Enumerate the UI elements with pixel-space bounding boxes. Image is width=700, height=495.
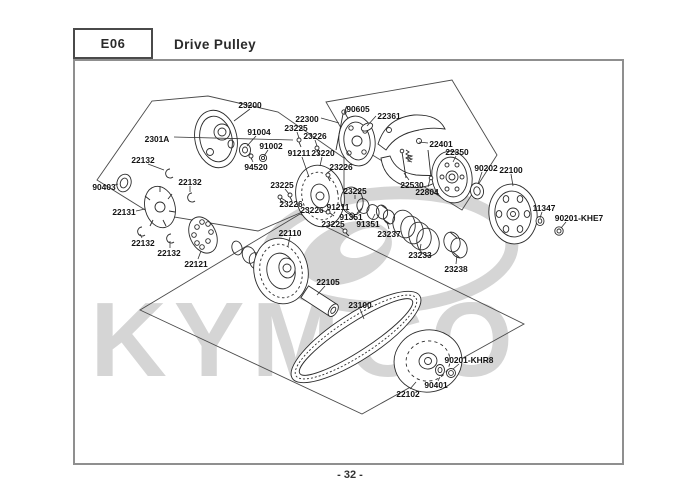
part-label-22110: 22110 [279, 228, 302, 238]
part-label-22132: 22132 [157, 248, 181, 258]
part-label-22105: 22105 [316, 277, 340, 287]
part-label-94520: 94520 [244, 162, 268, 172]
part-label-90401: 90401 [424, 380, 448, 390]
page-number: - 32 - [0, 469, 700, 481]
part-label-23233: 23233 [408, 250, 432, 260]
part-label-23225: 23225 [343, 186, 367, 196]
leader-line-22131 [136, 209, 145, 211]
part-ramp-plate-22131 [140, 183, 180, 231]
part-label-91351: 91351 [356, 219, 380, 229]
part-label-22121: 22121 [184, 259, 208, 269]
part-label-91211: 91211 [288, 148, 311, 158]
exploded-view-diagram: KYMCO [0, 0, 700, 495]
part-label-23237: 23237 [377, 229, 401, 239]
part-label-90201-KHR8: 90201-KHR8 [445, 355, 494, 365]
part-nut-91002 [259, 154, 266, 161]
part-label-22132: 22132 [178, 177, 202, 187]
part-label-23226: 23226 [303, 131, 327, 141]
part-label-90403: 90403 [92, 182, 116, 192]
part-circlip-22132-a [166, 169, 173, 178]
leader-line-22121 [198, 251, 201, 259]
part-label-23200: 23200 [238, 100, 262, 110]
part-seal-90403 [115, 172, 134, 193]
part-label-23238: 23238 [444, 264, 468, 274]
part-label-91211: 91211 [327, 202, 350, 212]
part-circlip-22132-c [138, 227, 145, 236]
part-label-22350: 22350 [445, 147, 469, 157]
part-label-22132: 22132 [131, 155, 155, 165]
part-label-22131: 22131 [112, 207, 136, 217]
part-washer-90401 [436, 365, 445, 376]
part-clutch-bell-22100 [485, 181, 541, 247]
part-label-22100: 22100 [499, 165, 523, 175]
part-drive-plate-23200 [189, 106, 242, 171]
part-nut-90201-khr8 [447, 369, 456, 378]
leader-line-91004 [247, 136, 256, 146]
part-label-23225: 23225 [270, 180, 294, 190]
part-label-2301A: 2301A [145, 134, 170, 144]
part-label-90605: 90605 [346, 104, 370, 114]
part-label-23100: 23100 [348, 300, 372, 310]
part-label-90202: 90202 [474, 163, 498, 173]
leader-line-23200 [234, 109, 250, 121]
part-label-91004: 91004 [247, 127, 271, 137]
part-label-11347: 11347 [533, 203, 556, 213]
part-circlip-22132-b [188, 193, 195, 202]
page: { "header": { "code": "E06", "title": "D… [0, 0, 700, 495]
part-pin-94520 [249, 153, 253, 160]
part-label-22361: 22361 [377, 111, 401, 121]
part-spring-seat-23238 [442, 230, 470, 259]
part-label-23226: 23226 [300, 205, 324, 215]
part-label-90201-KHE7: 90201-KHE7 [555, 213, 604, 223]
part-label-91002: 91002 [259, 141, 283, 151]
part-nut-90201-khe7 [555, 227, 563, 235]
part-label-23220: 23220 [311, 148, 335, 158]
part-label-22804: 22804 [415, 187, 439, 197]
part-backing-plate-22300 [336, 114, 379, 169]
part-label-23226: 23226 [329, 162, 353, 172]
leader-line-23220 [320, 157, 322, 166]
part-label-22132: 22132 [131, 238, 155, 248]
part-washer-91004 [240, 144, 251, 157]
part-label-22102: 22102 [396, 389, 420, 399]
